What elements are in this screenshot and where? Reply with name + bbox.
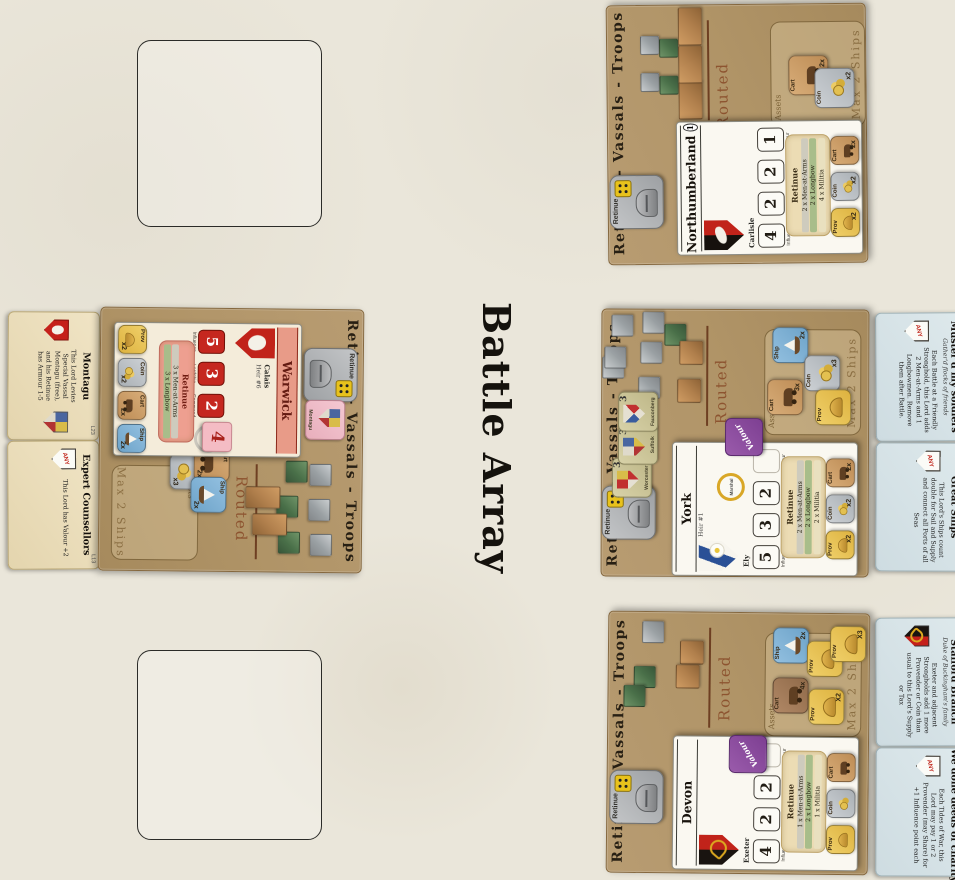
card-title: Montagu <box>80 313 92 440</box>
valour-token[interactable]: Valour <box>729 735 767 773</box>
lord-seat: Ely <box>742 555 751 567</box>
retinue-token[interactable]: Retinue <box>303 348 358 403</box>
asset-token-cart[interactable]: Cart3x <box>767 379 803 415</box>
troop-block-brown[interactable] <box>245 486 280 508</box>
helmet-icon <box>635 784 657 812</box>
card-title: Expert Counsellors <box>80 441 92 568</box>
asset-token-ship[interactable]: Ship2x <box>773 627 809 663</box>
card-title: Muster'd my soldiers <box>948 313 955 440</box>
asset-token-cart[interactable]: Cart4x <box>772 677 808 713</box>
asset-token-prov[interactable]: Prov <box>815 389 851 425</box>
card-body: Exeter and adjacent Strongholds add 1 mo… <box>896 651 937 738</box>
asset-token-ship[interactable]: Ship2x <box>190 477 226 513</box>
troop-cube-brown[interactable] <box>677 379 701 403</box>
retinue-scroll: Retinue 1 x Men-at-Arms 2 x Longbow 1 x … <box>781 750 827 852</box>
retinue-token[interactable]: Retinue <box>609 770 664 825</box>
valour-token[interactable]: Valour <box>725 418 763 456</box>
troop-cube-grey[interactable] <box>604 347 626 369</box>
vassal-token-montagu[interactable]: Montagu <box>305 400 345 440</box>
troop-block-brown[interactable] <box>678 81 702 119</box>
card-body: This Lord's Ships count double for Sail … <box>912 476 945 563</box>
card-title: Great Ships <box>948 444 955 571</box>
troop-cube-grey[interactable] <box>308 499 330 521</box>
retinue-scroll: Retinue 2 x Men-at-Arms 2 x Longbow 2 x … <box>781 456 826 558</box>
card-body: This Lord Levies Special Vassal Montagu … <box>35 345 76 406</box>
lord-card-northumberland[interactable]: Northumberland 1 Carlisle 4Influence 2Lo… <box>676 120 863 256</box>
troop-block-brown[interactable] <box>252 513 287 535</box>
lord-mat-devon[interactable]: Retinue - Vassals - Troops Routed Assets… <box>606 611 871 876</box>
routed-label: Routed <box>232 459 251 559</box>
valour-value-token[interactable]: 4 <box>202 422 232 452</box>
event-card-musterd-my-soldiers[interactable]: Y3 Muster'd my soldiers Gather'd flocks … <box>875 312 955 442</box>
asset-token-coin: Coin <box>826 789 855 818</box>
asset-token-ship[interactable]: Ship2x <box>772 327 808 363</box>
asset-token-prov: Provx2 <box>118 325 147 354</box>
troop-cube-grey[interactable] <box>640 73 659 92</box>
troop-cube-grey[interactable] <box>310 534 332 556</box>
troop-cube-grey[interactable] <box>611 315 633 337</box>
routed-line <box>255 464 258 559</box>
asset-token-prov: Provx2 <box>831 208 860 237</box>
asset-token-prov: Prov <box>826 825 855 854</box>
vassal-token-fauconberg[interactable]: 3 Fauconberg <box>618 392 658 432</box>
warwick-arms-icon <box>235 328 275 358</box>
warwick-arms-icon <box>44 319 69 340</box>
stat-influence: 5Influence <box>191 328 225 355</box>
lord-seat: Exeter <box>742 838 751 863</box>
asset-token-prov[interactable]: ProvX3 <box>830 626 866 662</box>
routed-line <box>707 20 710 120</box>
event-card-we-done-deeds-of-charity[interactable]: Y4 We done deeds of charity ANY Each Tid… <box>875 747 955 876</box>
troop-cube-green[interactable] <box>623 685 645 707</box>
lord-heir: Heir #1 <box>698 513 705 537</box>
card-slot-placeholder-bottom <box>137 650 322 840</box>
troop-cube-green[interactable] <box>659 39 678 58</box>
lord-name: York <box>679 493 694 524</box>
troop-cube-grey[interactable] <box>642 621 664 643</box>
asset-token-ship: Ship2x <box>117 424 146 453</box>
lord-card-york[interactable]: York Heir #1 Ely Marshal 5Influence 3Lor… <box>672 442 858 577</box>
battle-array-board: Battle Array L23 Montagu This Lord Levie… <box>0 0 955 880</box>
asset-token-cart: Cart2x <box>117 391 146 420</box>
troop-block-brown[interactable] <box>678 7 702 45</box>
any-shield-icon: ANY <box>904 320 929 341</box>
lord-mat-york[interactable]: Retinue - Vassals - Troops Routed Assets… <box>601 309 870 578</box>
asset-token-coin[interactable]: Coinx2 <box>814 68 854 108</box>
helmet-icon <box>628 500 650 528</box>
card-body: Each Tides of War, this Lord may pay 1 o… <box>912 781 945 868</box>
card-body: This Lord has Valour +2 <box>60 474 69 561</box>
retinue-scroll: Retinue 2 x Men-at-Arms 2 x Longbow 4 x … <box>785 134 831 236</box>
asset-token-coin: Coinx2 <box>830 172 859 201</box>
lord-mat-warwick[interactable]: Retinue - Vassals - Troops Routed Assets… <box>98 307 365 574</box>
routed-label: Routed <box>715 633 734 743</box>
assets-label: Assets <box>774 94 783 120</box>
asset-token-prov: Provx2 <box>826 531 855 560</box>
troop-cube-grey[interactable] <box>310 464 332 486</box>
die-icon <box>614 180 631 197</box>
event-card-expert-counsellors[interactable]: L13 Expert Counsellors ANY This Lord has… <box>7 440 100 569</box>
asset-token-cart: Cart2x <box>826 459 855 488</box>
northumberland-arms-icon <box>704 220 744 250</box>
die-icon <box>335 380 352 397</box>
worcester-arms-icon <box>617 471 639 489</box>
lord-name: Northumberland <box>683 135 699 253</box>
asset-token-coin: Coinx2 <box>118 358 147 387</box>
asset-token-coin: Coinx2 <box>826 495 855 524</box>
any-shield-icon: ANY <box>51 448 76 469</box>
stat-lordship: 3Lordship <box>191 360 225 387</box>
mat-header-label: Retinue - Vassals - Troops <box>610 616 629 863</box>
troop-block-brown[interactable] <box>678 45 702 83</box>
asset-token-coin[interactable]: Coinx3 <box>804 355 840 391</box>
event-card-great-ships[interactable]: Y6 Great Ships ANY This Lord's Ships cou… <box>875 442 955 571</box>
troop-cube-brown[interactable] <box>680 640 704 664</box>
retinue-scroll: Retinue 3 x Men-at-Arms 3 x Longbow <box>158 340 195 442</box>
card-title: We done deeds of charity <box>948 749 955 876</box>
troop-cube-grey[interactable] <box>640 342 662 364</box>
fauconberg-arms-icon <box>623 405 645 423</box>
any-shield-icon: ANY <box>916 755 941 776</box>
lord-seat: Carlisle <box>747 218 756 248</box>
montagu-arms-icon <box>318 409 340 427</box>
devon-arms-icon <box>699 835 739 865</box>
troop-cube-green[interactable] <box>286 461 308 483</box>
lord-mat-northumberland[interactable]: Retinue - Vassals - Troops Routed Assets… <box>606 3 869 266</box>
asset-token-cart: Cart <box>827 753 856 782</box>
battle-array-title: Battle Array <box>455 293 519 583</box>
lord-heir: Heir #6 <box>255 364 262 388</box>
asset-token-cart: Cart2x <box>830 136 859 165</box>
die-icon <box>614 775 631 792</box>
retinue-token[interactable]: Retinue <box>609 175 664 230</box>
event-card-stafford-branch[interactable]: Y29 Stafford Branch Duke of Buckingham's… <box>875 617 955 746</box>
any-shield-icon: ANY <box>916 450 941 471</box>
event-card-montagu[interactable]: L23 Montagu This Lord Levies Special Vas… <box>7 311 100 441</box>
asset-token-prov[interactable]: ProvX2 <box>808 689 844 725</box>
card-title: Stafford Branch <box>948 618 955 745</box>
card-body: Each Battle at a Friendly Stronghold, th… <box>896 346 937 433</box>
troop-cube-grey[interactable] <box>640 36 659 55</box>
troop-cube-brown[interactable] <box>676 664 700 688</box>
max-ships-label: Max 2 Ships <box>114 466 128 559</box>
helmet-icon <box>310 360 332 388</box>
lord-name: Devon <box>679 781 694 825</box>
montagu-arms-icon <box>43 411 68 432</box>
york-arms-icon <box>699 541 739 571</box>
card-slot-placeholder-top <box>137 40 322 227</box>
suffolk-arms-icon <box>623 438 645 456</box>
routed-line <box>706 326 708 426</box>
lord-badge: 1 <box>683 124 698 132</box>
marshal-ring[interactable]: Marshal <box>717 473 745 501</box>
stat-command: 2Command <box>190 392 224 419</box>
lord-seat: Calais <box>263 364 272 388</box>
troop-cube-grey[interactable] <box>642 312 664 334</box>
card-subtitle: Duke of Buckingham's family <box>941 618 949 745</box>
troop-cube-brown[interactable] <box>679 341 703 365</box>
lord-name: Warwick <box>279 361 295 421</box>
card-id: L23 <box>89 426 95 435</box>
routed-line <box>708 628 711 728</box>
card-id: L13 <box>90 554 96 563</box>
devon-arms-icon <box>904 625 929 646</box>
troop-cube-green[interactable] <box>659 76 678 95</box>
helmet-icon <box>636 189 658 217</box>
